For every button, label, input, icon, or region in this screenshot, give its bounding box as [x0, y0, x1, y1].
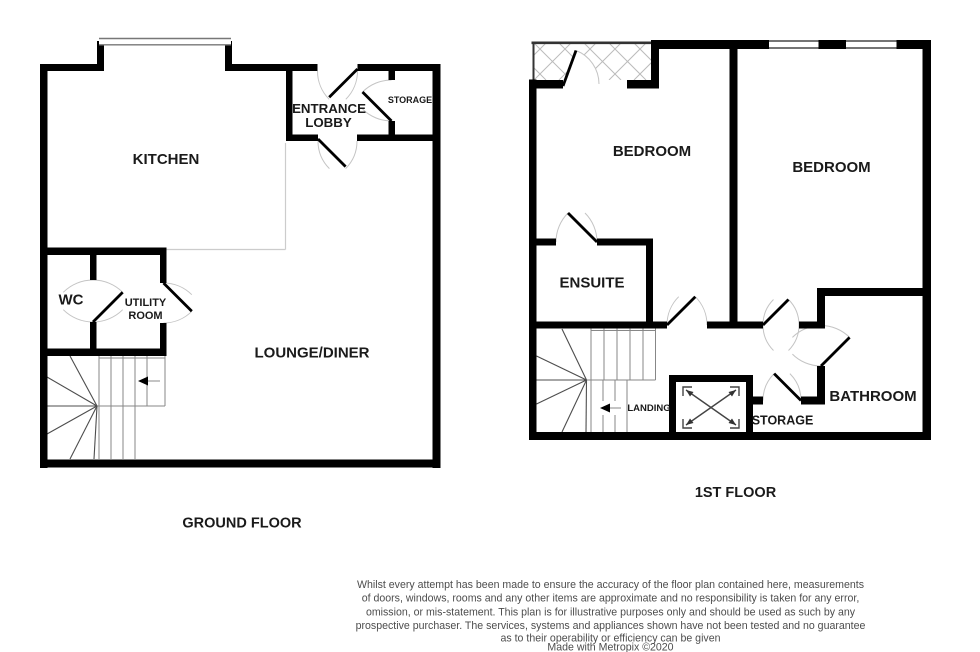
svg-text:1ST FLOOR: 1ST FLOOR: [695, 485, 777, 501]
svg-text:STORAGE: STORAGE: [388, 95, 432, 105]
svg-text:UTILITY: UTILITY: [125, 297, 167, 309]
svg-text:BATHROOM: BATHROOM: [829, 388, 916, 405]
svg-text:ENSUITE: ENSUITE: [559, 275, 624, 292]
svg-text:Made with Metropix ©2020: Made with Metropix ©2020: [547, 642, 673, 652]
svg-text:prospective purchaser. The ser: prospective purchaser. The services, sys…: [356, 620, 866, 632]
svg-text:STORAGE: STORAGE: [752, 414, 814, 428]
svg-text:KITCHEN: KITCHEN: [133, 151, 200, 168]
svg-text:WC: WC: [59, 292, 84, 309]
svg-text:LOBBY: LOBBY: [305, 115, 352, 130]
svg-text:GROUND FLOOR: GROUND FLOOR: [182, 516, 302, 532]
svg-text:ENTRANCE: ENTRANCE: [292, 101, 366, 116]
svg-text:of doors, windows, rooms and a: of doors, windows, rooms and any other i…: [362, 593, 860, 605]
svg-text:ROOM: ROOM: [128, 310, 162, 322]
svg-text:Whilst every attempt has been: Whilst every attempt has been made to en…: [357, 579, 864, 591]
svg-text:LOUNGE/DINER: LOUNGE/DINER: [254, 345, 369, 362]
svg-text:LANDING: LANDING: [627, 403, 670, 414]
svg-text:BEDROOM: BEDROOM: [792, 159, 870, 176]
svg-text:BEDROOM: BEDROOM: [613, 143, 691, 160]
svg-text:omission, or mis-statement. Th: omission, or mis-statement. This plan is…: [366, 606, 856, 618]
